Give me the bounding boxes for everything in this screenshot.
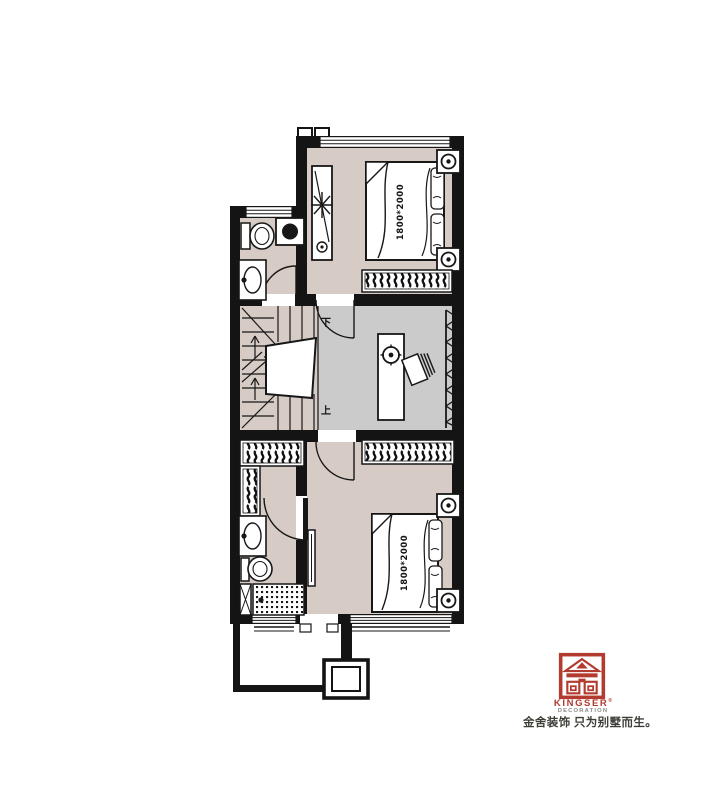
- tv-cabinet: [308, 530, 315, 586]
- nightstand-top-2: [437, 248, 460, 271]
- tap-icon: [241, 533, 246, 538]
- tap-icon: [241, 277, 246, 282]
- toilet-top-icon: [241, 223, 274, 249]
- nightstand-top-1: [437, 150, 460, 173]
- window-bottom-bathroom: [252, 615, 296, 631]
- lamp-center: [446, 503, 450, 507]
- registered-mark: ®: [608, 698, 612, 704]
- plant-icon: [311, 192, 333, 218]
- floor-plan-page: 1800*2000: [0, 0, 704, 800]
- washing-machine-icon: [276, 218, 304, 245]
- kingser-logo: [558, 652, 606, 700]
- lamp-center: [446, 598, 450, 602]
- window-top-bedroom: [320, 137, 450, 148]
- stairs-up-label: 上: [321, 404, 331, 417]
- flower-center: [320, 245, 323, 248]
- door-gap-bottom-bedroom: [318, 430, 356, 442]
- top-bed-size-label: 1800*2000: [396, 184, 406, 240]
- wardrobe-top-bedroom: [362, 270, 452, 292]
- lamp-center: [446, 159, 450, 163]
- lamp-center: [446, 257, 450, 261]
- stair-void: [266, 338, 316, 398]
- door-gap-top-bathroom: [262, 294, 295, 306]
- door-gap-top-bedroom: [316, 294, 354, 306]
- terrace-wall-left: [233, 624, 240, 692]
- nightstand-bottom-2: [437, 589, 460, 612]
- washbasin-top-icon: [239, 260, 266, 300]
- toilet-bottom-icon: [241, 557, 272, 581]
- plant-cabinet: [311, 166, 333, 260]
- wall-bedroom-left-upper: [296, 136, 307, 216]
- wardrobe-bottom-bedroom: [362, 440, 454, 464]
- window-top-bathroom: [246, 207, 292, 218]
- shower-area: [240, 584, 304, 615]
- nightstand-bottom-1: [437, 494, 460, 517]
- bed-bottom: 1800*2000: [372, 514, 442, 612]
- bottom-bed-size-label: 1800*2000: [400, 535, 410, 591]
- kingser-logo-icon: [558, 652, 606, 700]
- washbasin-bottom-icon: [239, 516, 266, 556]
- window-bottom-bedroom: [350, 615, 452, 631]
- bed-top: 1800*2000: [366, 162, 444, 260]
- brand-tagline: 金舍装饰 只为别墅而生。: [523, 714, 693, 730]
- drain-icon: [258, 597, 263, 602]
- terrace-planter: [324, 660, 368, 698]
- terrace-door: [300, 614, 338, 632]
- stairs-down-label: 下: [321, 317, 331, 329]
